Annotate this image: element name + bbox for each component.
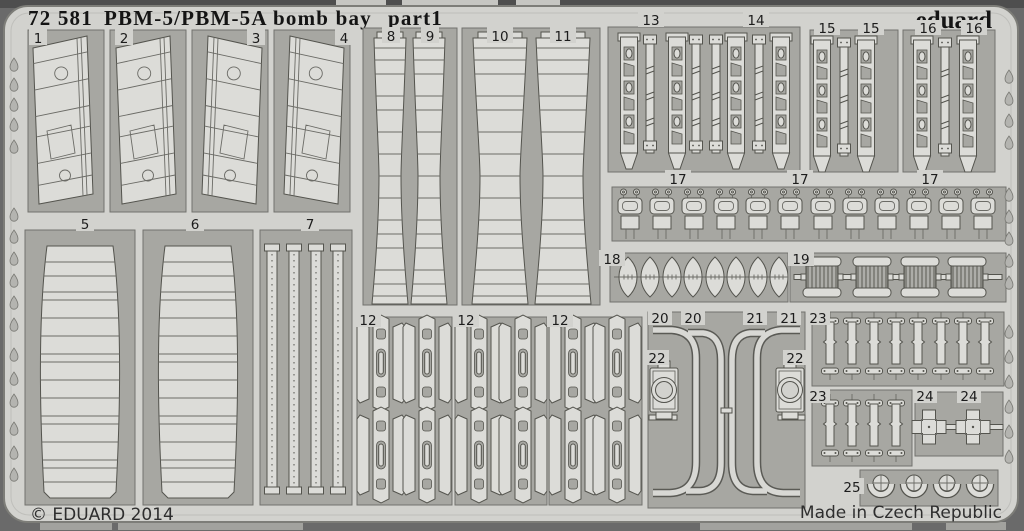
bracket-assembly [499, 315, 547, 411]
bracket-assembly [357, 407, 405, 503]
part-designation: part1 [388, 6, 443, 30]
part-label-17: 17 [669, 172, 686, 188]
group-frame-strips-15-16 [810, 30, 995, 172]
part-label-12: 12 [551, 313, 568, 329]
part-label-21: 21 [746, 311, 763, 327]
frame-strip [855, 36, 877, 172]
part-label-23: 23 [809, 311, 826, 327]
group-stiffeners-7 [260, 230, 352, 505]
bracket-assembly [499, 407, 547, 503]
part-label-16: 16 [965, 21, 982, 37]
part-label-15: 15 [862, 21, 879, 37]
part-label-20: 20 [651, 311, 668, 327]
part-4-door [284, 36, 344, 204]
part-label-17: 17 [791, 172, 808, 188]
part-22-roller-bracket [650, 361, 678, 419]
part-3-door [202, 36, 262, 204]
part-label-24: 24 [960, 389, 977, 405]
part-label-2: 2 [120, 31, 129, 47]
part-label-6: 6 [191, 217, 200, 233]
frame-strip [811, 36, 833, 172]
part-label-19: 19 [792, 252, 809, 268]
made-in-text: Made in Czech Republic [800, 503, 1002, 523]
group-frame-strips-13-14 [608, 27, 800, 172]
product-title: PBM-5/PBM-5A bomb bay [104, 6, 372, 30]
part-label-7: 7 [306, 217, 315, 233]
frame-strip [618, 33, 640, 169]
spool-fitting [946, 257, 988, 297]
part-label-12: 12 [359, 313, 376, 329]
part-label-22: 22 [786, 351, 803, 367]
part-label-9: 9 [426, 29, 435, 45]
part-label-12: 12 [457, 313, 474, 329]
photo-etch-sheet-photo: 72 581 PBM-5/PBM-5A bomb bay part1 eduar… [0, 0, 1024, 531]
group-latches-17 [612, 187, 1006, 241]
part-label-16: 16 [919, 21, 936, 37]
bracket-assembly [455, 315, 503, 411]
spool-fitting [851, 257, 893, 297]
bracket-assembly [455, 407, 503, 503]
part-6-fairing-skin [153, 246, 243, 498]
part-label-22: 22 [648, 351, 665, 367]
part-label-24: 24 [916, 389, 933, 405]
part-label-20: 20 [684, 311, 701, 327]
group-keel-strips-8-9 [360, 28, 459, 305]
frame-strip [957, 36, 979, 172]
part-label-1: 1 [34, 31, 43, 47]
part-label-17: 17 [921, 172, 938, 188]
frame-strip [666, 33, 688, 169]
part-22-roller-bracket [776, 361, 804, 419]
part-label-25: 25 [843, 480, 860, 496]
part-5-fairing-skin [35, 246, 125, 498]
bracket-assembly [357, 315, 405, 411]
spool-fitting [899, 257, 941, 297]
bracket-assembly [403, 315, 451, 411]
part-label-15: 15 [818, 21, 835, 37]
bracket-assembly [549, 407, 597, 503]
part-label-4: 4 [340, 31, 349, 47]
part-1-door [33, 36, 93, 204]
part-label-18: 18 [603, 252, 620, 268]
part-label-11: 11 [554, 29, 571, 45]
bracket-assembly [593, 315, 641, 411]
bracket-assembly [403, 407, 451, 503]
catalog-number: 72 581 [28, 6, 93, 30]
copyright-text: © EDUARD 2014 [30, 505, 174, 525]
group-track-rails-20-21 [648, 312, 805, 508]
group-lenses-18 [610, 253, 788, 302]
frame-strip [770, 33, 792, 169]
part-label-23: 23 [809, 389, 826, 405]
part-label-3: 3 [252, 31, 261, 47]
part-label-5: 5 [81, 217, 90, 233]
bracket-assembly [593, 407, 641, 503]
group-clamp-rings-25 [860, 470, 998, 506]
part-label-13: 13 [642, 13, 659, 29]
frame-strip [725, 33, 747, 169]
group-keel-strips-10-11 [462, 28, 600, 305]
frame-strip [911, 36, 933, 172]
part-label-10: 10 [491, 29, 508, 45]
group-brackets-12 [357, 315, 642, 505]
part-label-8: 8 [387, 29, 396, 45]
part-label-14: 14 [747, 13, 764, 29]
bracket-assembly [549, 315, 597, 411]
part-label-21: 21 [780, 311, 797, 327]
pe-fret-scan: 72 581 PBM-5/PBM-5A bomb bay part1 eduar… [0, 0, 1024, 531]
part-2-door [116, 36, 176, 204]
group-spools-19 [790, 253, 1006, 302]
group-hinges-23-row1 [812, 312, 1004, 386]
